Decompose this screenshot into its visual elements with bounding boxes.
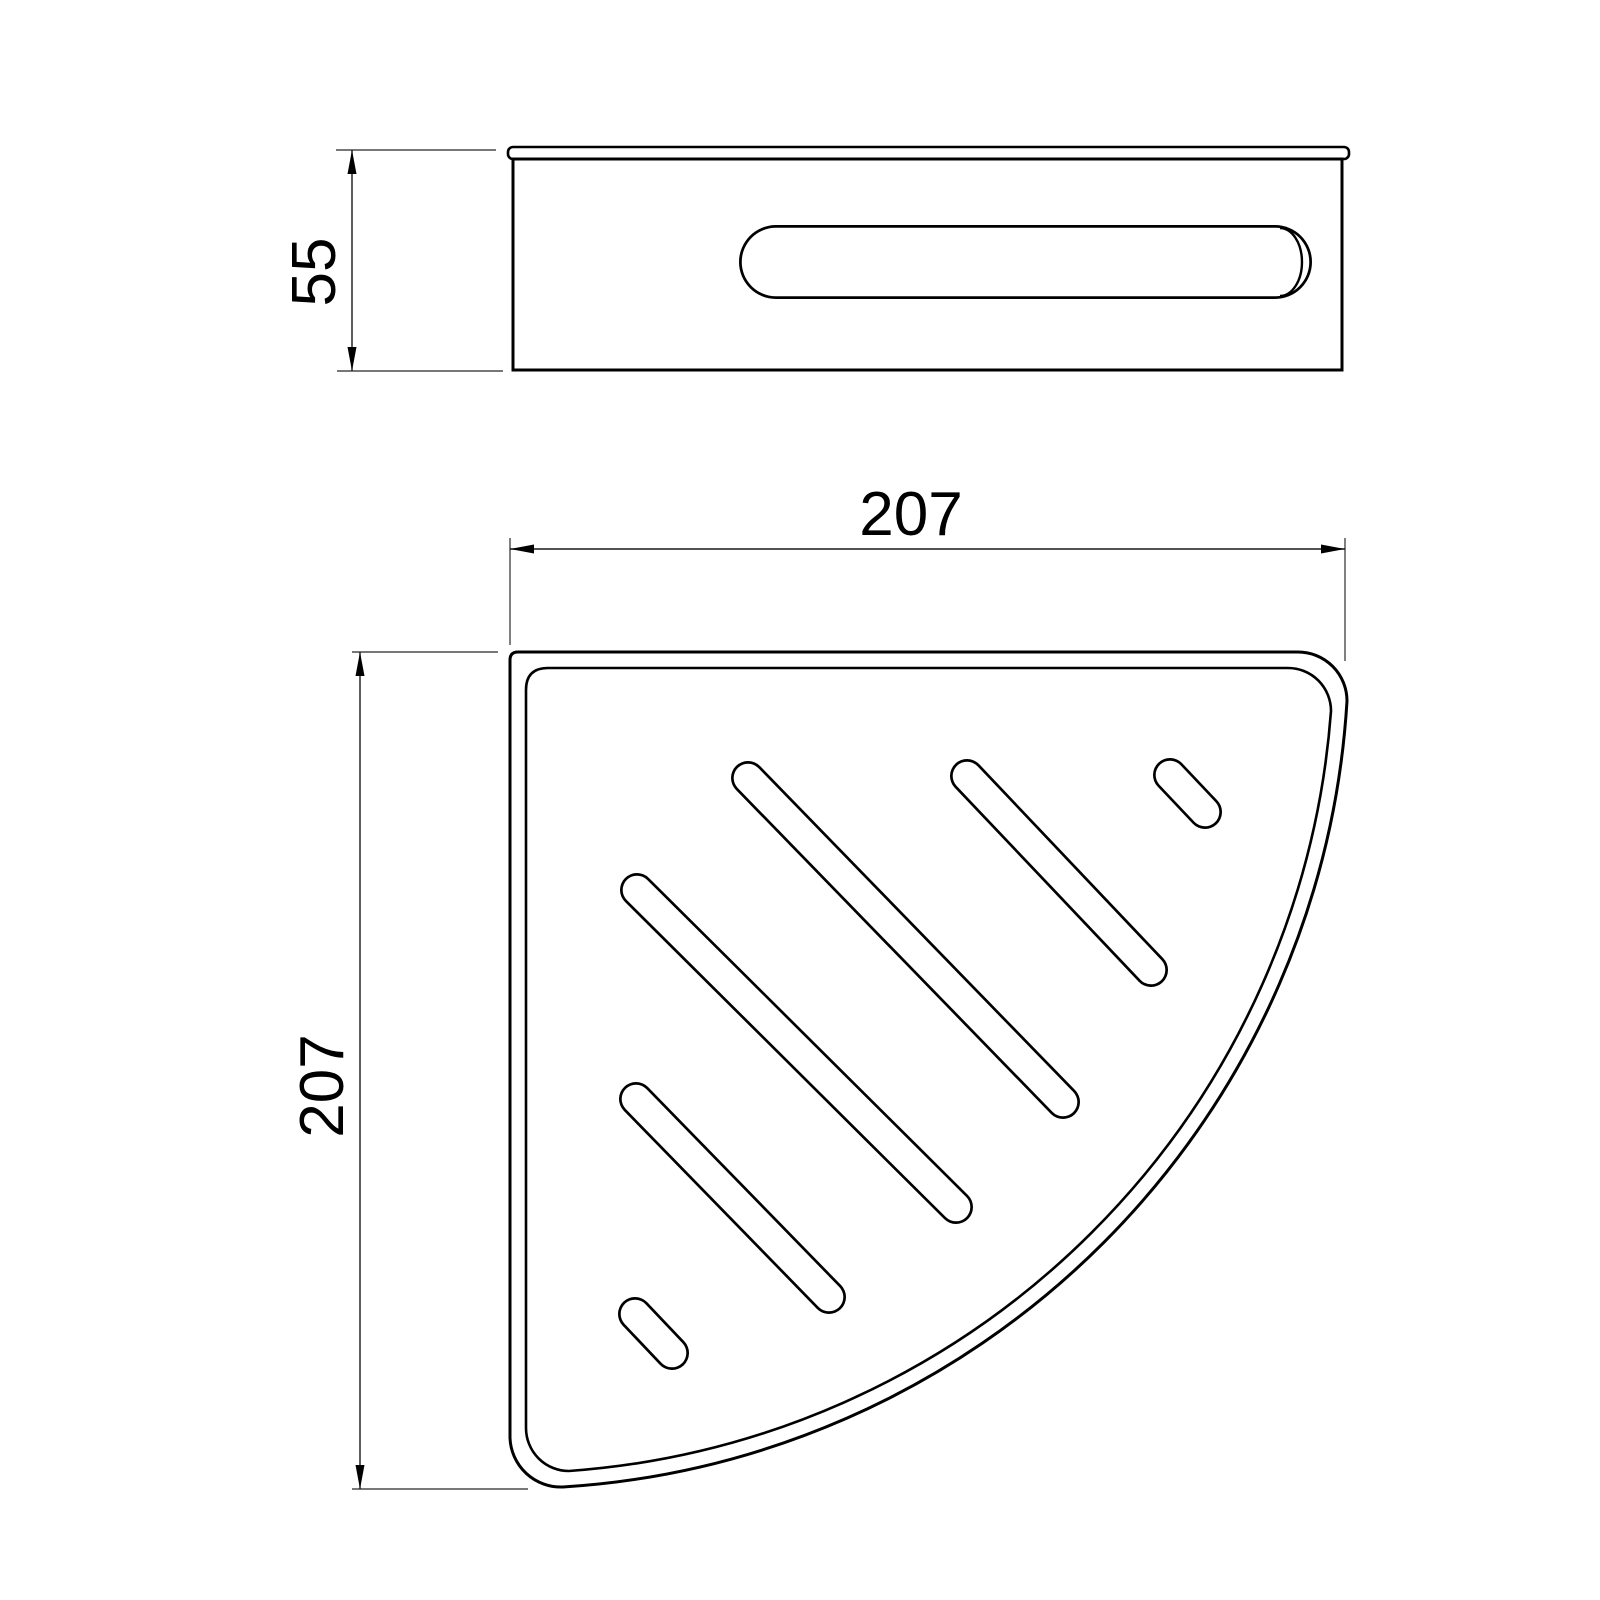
plan-slot-fill-5 [636, 1099, 829, 1297]
dimension-plan-width: 207 [510, 480, 1345, 661]
arrowhead-right [1321, 545, 1345, 554]
plan-slot-fill-6 [635, 1314, 672, 1353]
plan-view [510, 652, 1347, 1487]
dimension-label-plan-depth: 207 [288, 1034, 357, 1137]
plan-slot-fill-3 [1170, 775, 1205, 812]
dimension-side-height: 55 [280, 150, 503, 371]
arrowhead-down [356, 1465, 365, 1489]
dimension-label-side-height: 55 [280, 238, 349, 307]
plan-slots [635, 775, 1205, 1353]
technical-drawing-page: 55 207 207 [0, 0, 1600, 1600]
drawing-svg: 55 207 207 [0, 0, 1600, 1600]
arrowhead-up [348, 150, 357, 174]
side-view [508, 147, 1349, 370]
arrowhead-up [356, 652, 365, 676]
dimension-plan-depth: 207 [288, 652, 528, 1489]
plan-slot-fill-2 [967, 776, 1151, 970]
arrowhead-left [510, 545, 534, 554]
arrowhead-down [348, 347, 357, 371]
dimension-label-plan-width: 207 [859, 480, 962, 549]
plan-outer-outline [510, 652, 1347, 1487]
side-view-top-lip [508, 147, 1349, 159]
